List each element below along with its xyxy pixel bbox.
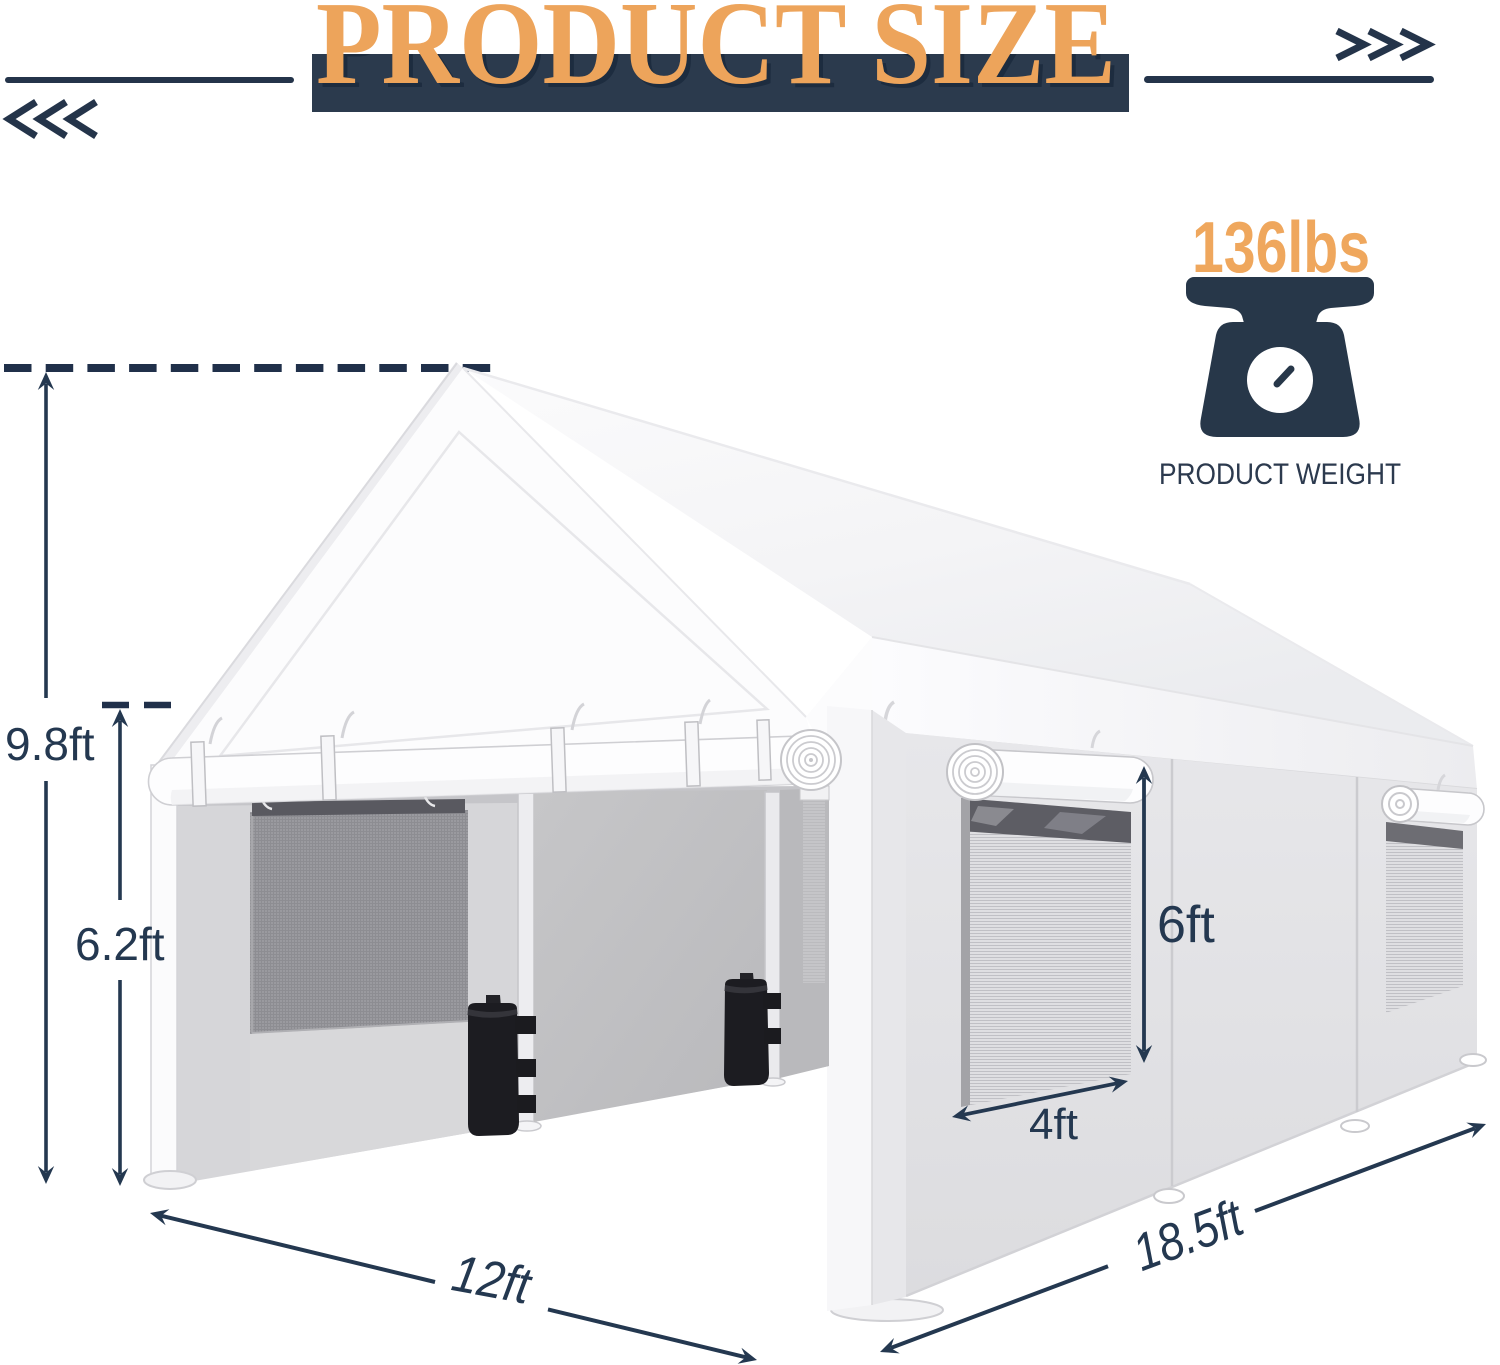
svg-text:9.8ft: 9.8ft	[5, 718, 95, 770]
svg-text:PRODUCT SIZE: PRODUCT SIZE	[316, 0, 1116, 109]
svg-text:136lbs: 136lbs	[1192, 208, 1370, 288]
svg-text:6ft: 6ft	[1157, 896, 1215, 954]
svg-text:PRODUCT WEIGHT: PRODUCT WEIGHT	[1159, 458, 1401, 491]
svg-text:12ft: 12ft	[448, 1244, 538, 1316]
svg-text:4ft: 4ft	[1029, 1100, 1078, 1149]
svg-text:6.2ft: 6.2ft	[75, 918, 165, 970]
svg-text:18.5ft: 18.5ft	[1125, 1188, 1252, 1282]
